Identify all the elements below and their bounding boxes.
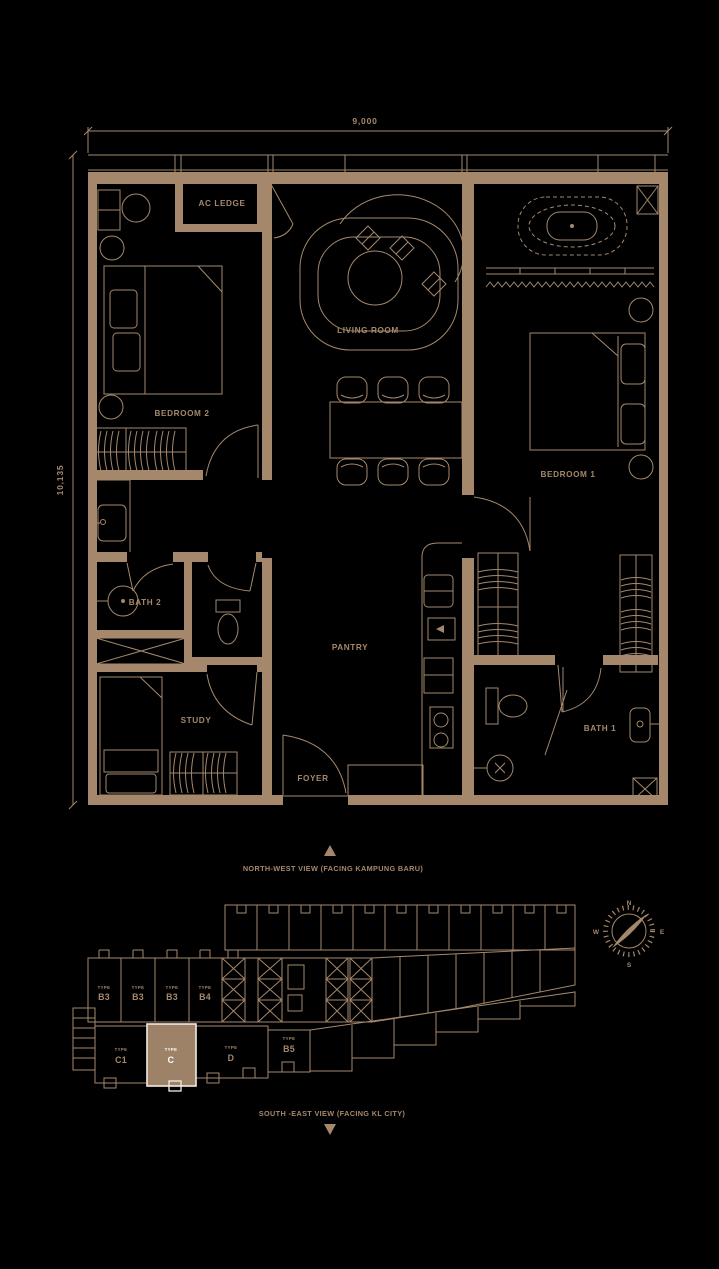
- keyplan-lower-band: [73, 992, 575, 1091]
- floor-plan-page: 9,000 10,135: [0, 0, 719, 1269]
- room-label-bath-1: BATH 1: [584, 724, 617, 733]
- south-arrow-icon: [324, 1124, 336, 1135]
- north-view-label: NORTH-WEST VIEW (FACING KAMPUNG BARU): [243, 864, 424, 873]
- unit-b3c-prefix: TYPE: [166, 985, 179, 990]
- unit-b3b-label: B3: [132, 992, 144, 1002]
- unit-b5-prefix: TYPE: [283, 1036, 296, 1041]
- dimension-left: 10,135: [55, 465, 65, 496]
- keyplan-upper-band: [225, 905, 575, 958]
- kitchen-furniture: [422, 543, 462, 795]
- bedroom2-furniture: [96, 190, 222, 476]
- room-label-bath-2: BATH 2: [129, 598, 162, 607]
- bathtub: [518, 186, 658, 255]
- unit-c1-prefix: TYPE: [115, 1047, 128, 1052]
- compass-e: E: [660, 929, 665, 936]
- walls: [88, 172, 668, 805]
- unit-c-prefix: TYPE: [165, 1047, 178, 1052]
- compass-icon: N E S W: [593, 900, 665, 969]
- south-view-label: SOUTH -EAST VIEW (FACING KL CITY): [259, 1109, 406, 1118]
- window-zigzag-bedroom1: [486, 282, 654, 287]
- room-label-study: STUDY: [181, 716, 212, 725]
- room-label-ac-ledge: AC LEDGE: [198, 199, 245, 208]
- north-arrow-icon: [324, 845, 336, 856]
- floor-plan-drawing: 9,000 10,135: [0, 0, 719, 1269]
- unit-c1-label: C1: [115, 1055, 127, 1065]
- room-label-pantry: PANTRY: [332, 643, 368, 652]
- unit-b3a-prefix: TYPE: [98, 985, 111, 990]
- bath1-furniture: [474, 667, 659, 800]
- compass-n: N: [627, 900, 632, 907]
- room-label-bedroom-2: BEDROOM 2: [155, 409, 210, 418]
- room-label-bedroom-1: BEDROOM 1: [541, 470, 596, 479]
- doors: [127, 186, 601, 795]
- dimension-top: 9,000: [352, 116, 377, 126]
- unit-b3c-label: B3: [166, 992, 178, 1002]
- unit-c-label: C: [168, 1055, 175, 1065]
- unit-b3b-prefix: TYPE: [132, 985, 145, 990]
- study-furniture: [100, 677, 237, 795]
- room-labels: AC LEDGE LIVING ROOM BEDROOM 2 BEDROOM 1…: [129, 199, 617, 783]
- bedroom1-furniture: [478, 298, 653, 672]
- unit-b3a-label: B3: [98, 992, 110, 1002]
- unit-d-prefix: TYPE: [225, 1045, 238, 1050]
- compass-w: W: [593, 929, 600, 936]
- keyplan-middle-band: [88, 948, 575, 1022]
- room-label-living-room: LIVING ROOM: [337, 326, 399, 335]
- unit-b4-label: B4: [199, 992, 211, 1002]
- compass-s: S: [627, 962, 632, 969]
- key-plan: TYPE B3 TYPE B3 TYPE B3 TYPE B4 TYPE C1 …: [73, 905, 575, 1091]
- keyplan-unit-d: [196, 1026, 268, 1078]
- unit-b4-prefix: TYPE: [199, 985, 212, 990]
- unit-d-label: D: [228, 1053, 235, 1063]
- unit-b5-label: B5: [283, 1044, 295, 1054]
- room-label-foyer: FOYER: [297, 774, 328, 783]
- dining-furniture: [330, 377, 462, 485]
